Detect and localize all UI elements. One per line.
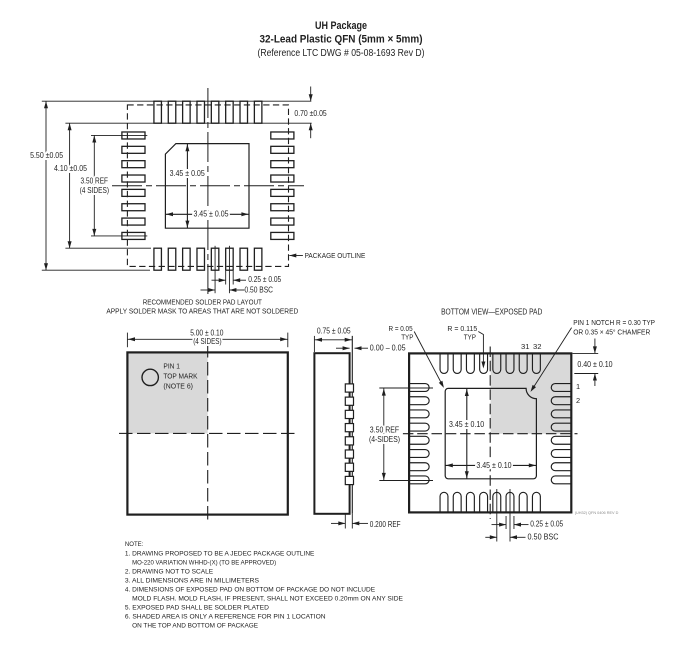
svg-text:(4-SIDES): (4-SIDES) <box>369 434 400 444</box>
svg-text:2. DRAWING NOT TO SCALE: 2. DRAWING NOT TO SCALE <box>125 568 214 575</box>
svg-text:RECOMMENDED SOLDER PAD LAYOUT: RECOMMENDED SOLDER PAD LAYOUT <box>143 299 263 306</box>
svg-text:APPLY SOLDER MASK TO AREAS THA: APPLY SOLDER MASK TO AREAS THAT ARE NOT … <box>106 308 298 315</box>
svg-text:TYP: TYP <box>401 332 413 341</box>
svg-text:TYP: TYP <box>464 332 476 341</box>
svg-text:MO-220 VARIATION WHHD-(X) (TO: MO-220 VARIATION WHHD-(X) (TO BE APPROVE… <box>132 559 276 566</box>
svg-text:3. ALL DIMENSIONS ARE IN MILLI: 3. ALL DIMENSIONS ARE IN MILLIMETERS <box>125 577 260 584</box>
svg-text:(Reference LTC DWG # 05-08-169: (Reference LTC DWG # 05-08-1693 Rev D) <box>258 48 425 59</box>
svg-text:(UH32) QFN 0406 REV D: (UH32) QFN 0406 REV D <box>575 510 619 515</box>
svg-text:3.45 ± 0.05: 3.45 ± 0.05 <box>170 168 205 178</box>
svg-text:32-Lead Plastic QFN (5mm × 5mm: 32-Lead Plastic QFN (5mm × 5mm) <box>260 34 423 46</box>
svg-text:0.75 ± 0.05: 0.75 ± 0.05 <box>317 326 351 336</box>
svg-text:0.00 – 0.05: 0.00 – 0.05 <box>370 343 406 353</box>
svg-text:(4 SIDES): (4 SIDES) <box>80 185 110 195</box>
svg-text:1: 1 <box>576 382 580 391</box>
svg-text:5.50 ±0.05: 5.50 ±0.05 <box>30 150 63 160</box>
svg-text:0.50 BSC: 0.50 BSC <box>528 532 559 542</box>
svg-text:3.50 REF: 3.50 REF <box>370 424 399 434</box>
svg-text:NOTE:: NOTE: <box>125 541 144 548</box>
svg-text:PIN 1 NOTCH R = 0.30 TYP: PIN 1 NOTCH R = 0.30 TYP <box>573 318 655 327</box>
svg-text:(4 SIDES): (4 SIDES) <box>193 336 222 346</box>
svg-text:0.70 ±0.05: 0.70 ±0.05 <box>294 108 327 118</box>
svg-text:UH Package: UH Package <box>315 20 367 32</box>
svg-text:PIN 1: PIN 1 <box>163 361 180 370</box>
svg-text:0.25 ± 0.05: 0.25 ± 0.05 <box>248 274 281 284</box>
svg-text:4. DIMENSIONS OF EXPOSED PAD O: 4. DIMENSIONS OF EXPOSED PAD ON BOTTOM O… <box>125 586 376 593</box>
svg-text:MOLD FLASH. MOLD FLASH, IF PRE: MOLD FLASH. MOLD FLASH, IF PRESENT, SHAL… <box>132 595 403 602</box>
svg-text:1. DRAWING PROPOSED TO BE A JE: 1. DRAWING PROPOSED TO BE A JEDEC PACKAG… <box>125 550 315 557</box>
svg-text:3.45 ± 0.10: 3.45 ± 0.10 <box>476 460 511 470</box>
svg-text:4.10 ±0.05: 4.10 ±0.05 <box>54 163 87 173</box>
svg-text:TOP MARK: TOP MARK <box>163 372 197 381</box>
svg-text:OR 0.35 × 45° CHAMFER: OR 0.35 × 45° CHAMFER <box>573 328 650 337</box>
svg-text:3.45 ± 0.05: 3.45 ± 0.05 <box>193 209 228 219</box>
svg-text:32: 32 <box>533 342 542 351</box>
svg-text:0.40 ± 0.10: 0.40 ± 0.10 <box>577 359 612 369</box>
svg-text:BOTTOM VIEW—EXPOSED PAD: BOTTOM VIEW—EXPOSED PAD <box>441 308 542 317</box>
svg-text:(NOTE 6): (NOTE 6) <box>163 382 193 391</box>
svg-text:2: 2 <box>576 396 580 405</box>
svg-text:31: 31 <box>521 342 530 351</box>
svg-text:PACKAGE OUTLINE: PACKAGE OUTLINE <box>305 251 366 260</box>
svg-text:5. EXPOSED PAD SHALL BE SOLDER: 5. EXPOSED PAD SHALL BE SOLDER PLATED <box>125 604 269 611</box>
svg-text:0.50 BSC: 0.50 BSC <box>245 284 274 294</box>
svg-text:3.50 REF: 3.50 REF <box>81 175 109 185</box>
svg-text:6. SHADED AREA IS ONLY A REFER: 6. SHADED AREA IS ONLY A REFERENCE FOR P… <box>125 613 326 620</box>
svg-text:3.45 ± 0.10: 3.45 ± 0.10 <box>449 419 484 429</box>
svg-text:0.25 ± 0.05: 0.25 ± 0.05 <box>530 519 563 529</box>
svg-text:0.200 REF: 0.200 REF <box>370 519 401 529</box>
svg-text:ON THE TOP AND BOTTOM OF PACKA: ON THE TOP AND BOTTOM OF PACKAGE <box>132 622 258 629</box>
